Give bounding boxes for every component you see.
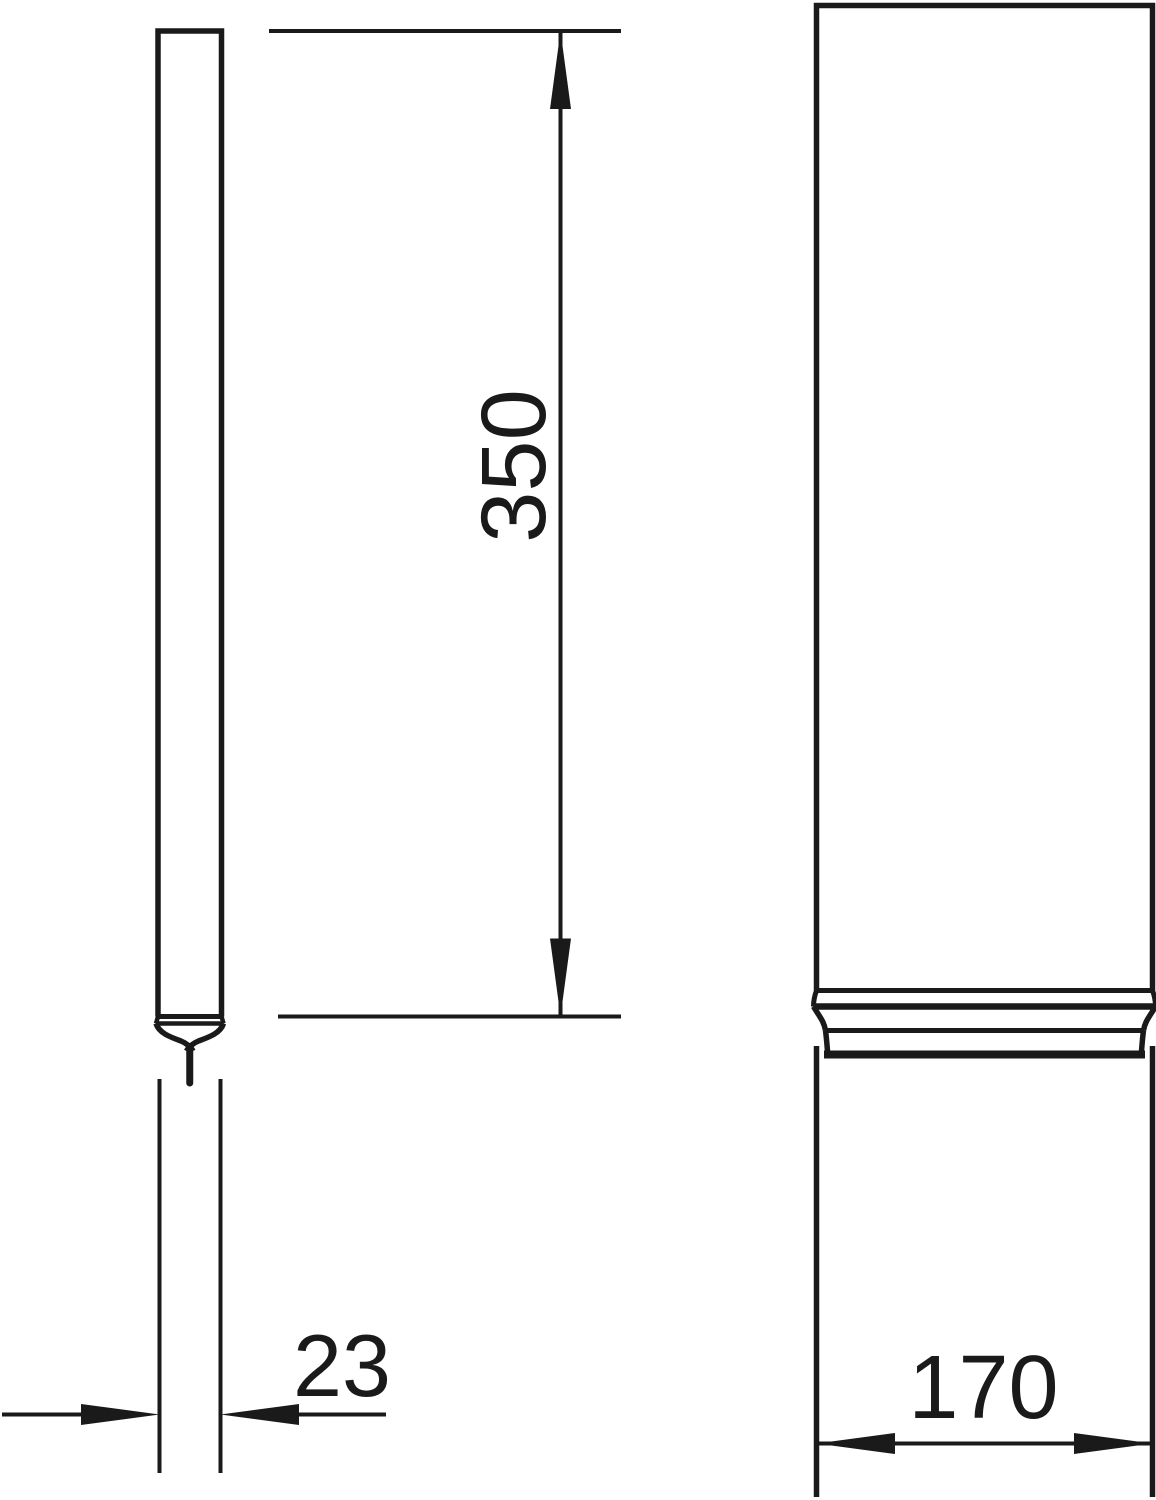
front-view bbox=[814, 6, 1156, 1498]
dimension-height-label: 350 bbox=[463, 389, 565, 543]
arrowhead-down-icon bbox=[550, 939, 571, 1017]
dimension-side-width-label: 23 bbox=[293, 1316, 391, 1415]
drawing-sheet: 350 23 170 bbox=[0, 0, 1156, 1500]
dimension-front-width-label: 170 bbox=[908, 1338, 1058, 1438]
front-view-cove-edge-right bbox=[1144, 1007, 1156, 1031]
front-view-foot-edge-left bbox=[826, 1031, 828, 1052]
technical-drawing-canvas: 350 23 170 bbox=[0, 0, 1156, 1500]
front-view-cove-edge-left bbox=[814, 1007, 826, 1031]
dimension-front-width-170: 170 bbox=[817, 1338, 1153, 1454]
arrowhead-left-icon bbox=[221, 1404, 300, 1425]
dimension-height-350: 350 bbox=[269, 31, 621, 1017]
arrowhead-right-icon bbox=[1074, 1433, 1153, 1454]
side-view-body-outline bbox=[158, 31, 222, 1017]
arrowhead-up-icon bbox=[550, 31, 571, 109]
front-view-foot-edge-right bbox=[1142, 1031, 1144, 1052]
side-view bbox=[156, 31, 224, 1083]
front-view-body-outline bbox=[817, 6, 1153, 991]
arrowhead-right-icon bbox=[81, 1404, 160, 1425]
dimension-side-width-23: 23 bbox=[2, 1079, 391, 1473]
arrowhead-left-icon bbox=[817, 1433, 896, 1454]
